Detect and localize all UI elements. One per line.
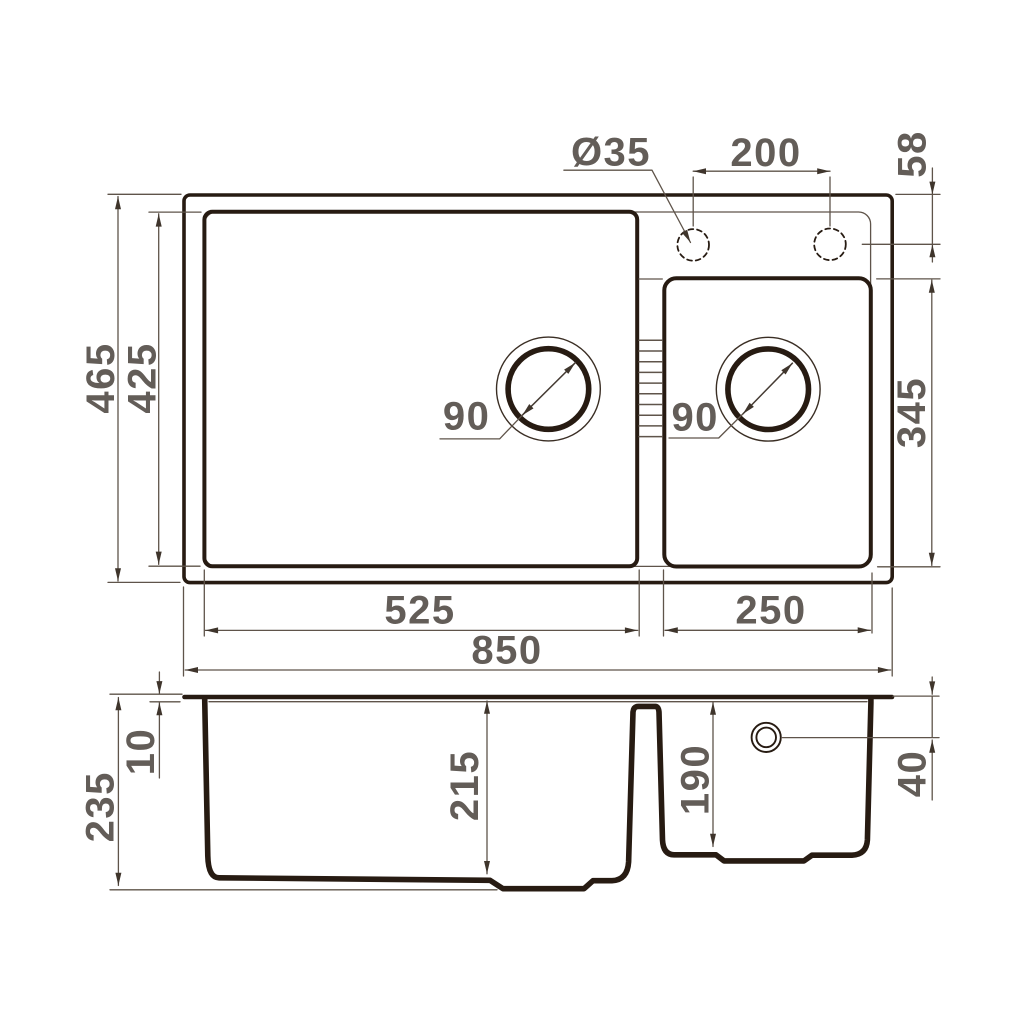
svg-text:215: 215 — [443, 750, 487, 821]
svg-text:90: 90 — [443, 395, 491, 439]
svg-text:90: 90 — [671, 396, 719, 440]
svg-text:465: 465 — [79, 342, 123, 413]
svg-text:250: 250 — [735, 589, 806, 633]
svg-text:525: 525 — [384, 589, 455, 633]
svg-text:190: 190 — [674, 744, 718, 815]
svg-text:40: 40 — [891, 750, 935, 798]
svg-text:850: 850 — [471, 629, 542, 673]
svg-text:Ø35: Ø35 — [571, 131, 651, 175]
svg-text:345: 345 — [890, 377, 934, 448]
svg-text:425: 425 — [121, 342, 165, 413]
svg-text:10: 10 — [119, 728, 163, 776]
svg-text:58: 58 — [891, 130, 935, 178]
svg-text:200: 200 — [730, 131, 801, 175]
svg-text:235: 235 — [79, 771, 123, 842]
